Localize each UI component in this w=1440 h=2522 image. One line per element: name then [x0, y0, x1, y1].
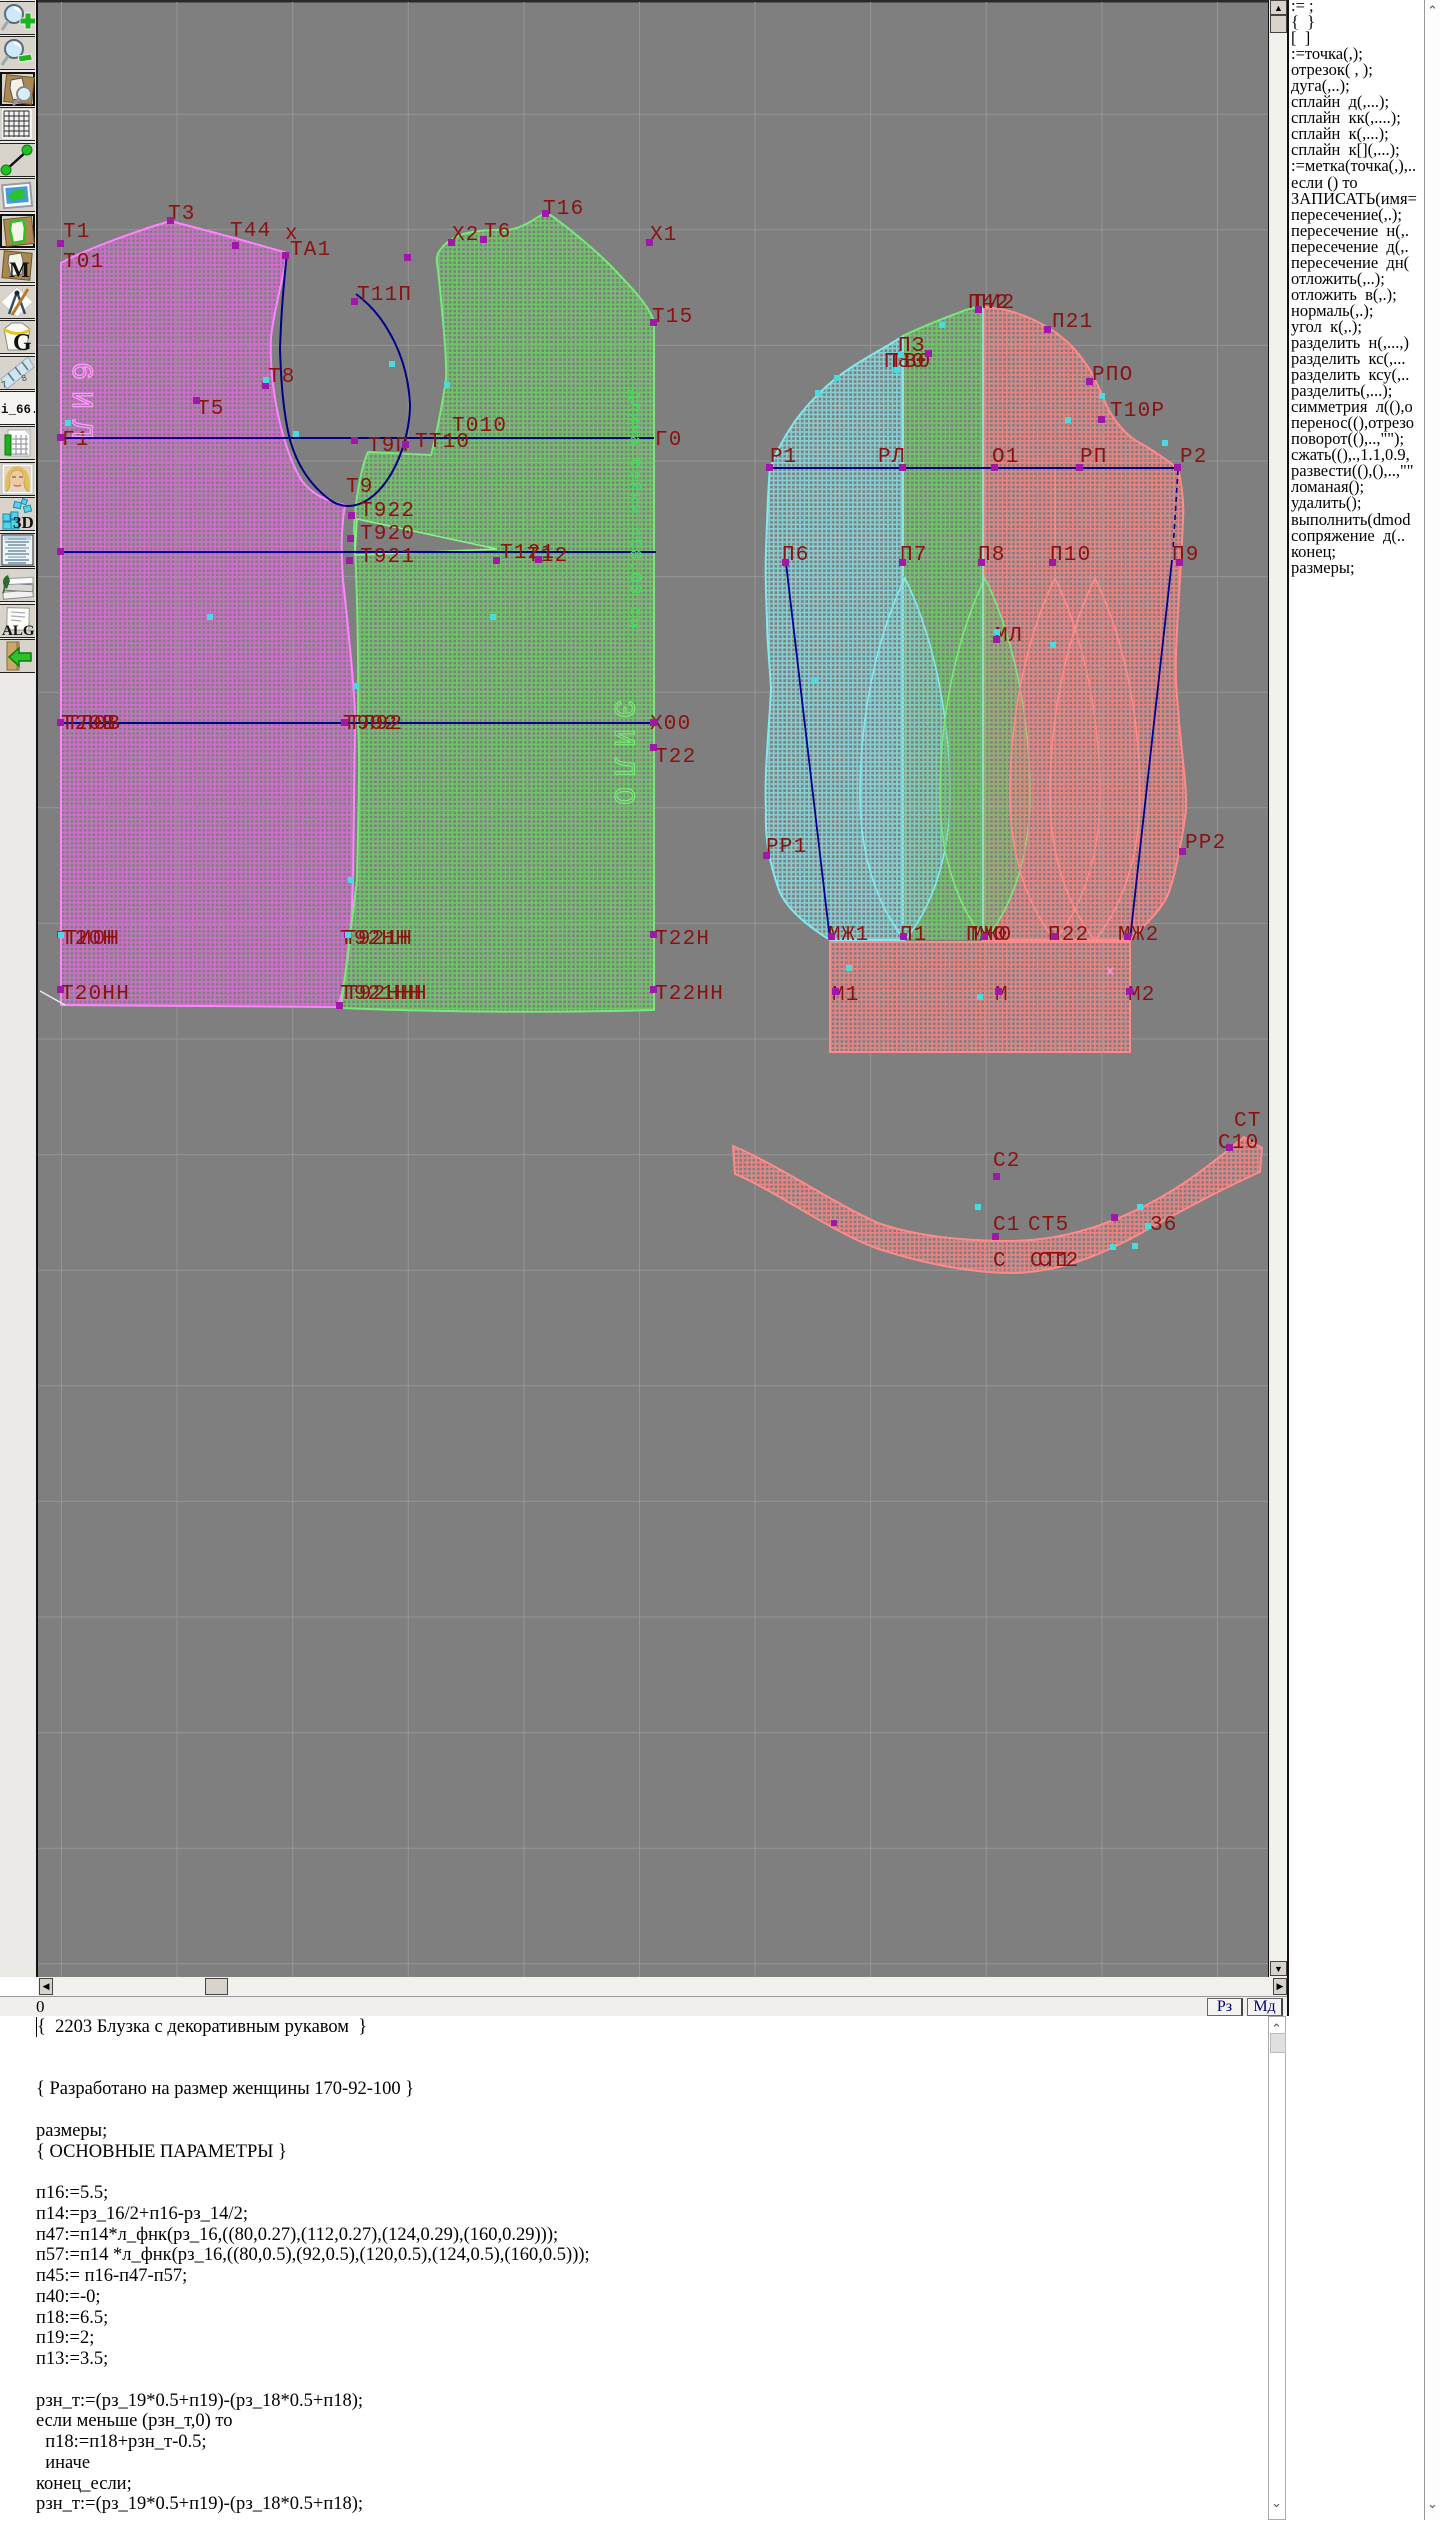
svg-text:С10: С10: [1218, 1132, 1259, 1155]
svg-text:6ИЛ: 6ИЛ: [63, 362, 97, 449]
svg-text:Т16: Т16: [543, 198, 584, 221]
svg-text:Т5: Т5: [197, 398, 225, 421]
svg-text:М2: М2: [1128, 984, 1156, 1007]
svg-text:G: G: [13, 330, 32, 353]
svg-text:МЖ0: МЖ0: [971, 924, 1012, 947]
svg-text:Т1: Т1: [63, 221, 91, 244]
svg-text:36: 36: [1150, 1214, 1178, 1237]
svg-text:Т921Н: Т921Н: [344, 928, 413, 951]
svg-text:Г0: Г0: [655, 429, 683, 452]
svg-text:ТТ10: ТТ10: [415, 431, 470, 454]
svg-text:Х1: Х1: [650, 224, 678, 247]
svg-text:РР1: РР1: [766, 836, 807, 859]
svg-text:Р2: Р2: [1180, 446, 1208, 469]
svg-text:РПО: РПО: [1092, 364, 1133, 387]
svg-text:длина бейки 458.00 см: длина бейки 458.00 см: [625, 390, 644, 629]
svg-text:М1: М1: [832, 984, 860, 1007]
svg-text:Т8: Т8: [268, 366, 296, 389]
svg-text:Т11П: Т11П: [357, 284, 412, 307]
svg-text:Т922: Т922: [360, 500, 415, 523]
svg-text:СТ: СТ: [1234, 1110, 1262, 1133]
svg-text:СТ5: СТ5: [1028, 1214, 1069, 1237]
svg-text:Т6: Т6: [484, 221, 512, 244]
svg-text:Т920: Т920: [360, 523, 415, 546]
svg-text:M: M: [9, 257, 30, 282]
svg-text:ТА1: ТА1: [290, 239, 331, 262]
svg-text:Т9: Т9: [346, 476, 374, 499]
svg-text:Т10Р: Т10Р: [1110, 400, 1165, 423]
svg-text:РП: РП: [1080, 446, 1108, 469]
svg-text:П10: П10: [1050, 544, 1091, 567]
svg-text:Т20НН: Т20НН: [61, 983, 130, 1006]
svg-text:Т01: Т01: [63, 251, 104, 274]
svg-text:Т22Н: Т22Н: [655, 928, 710, 951]
svg-text:Х2: Х2: [452, 224, 480, 247]
svg-text:СТ2: СТ2: [1038, 1250, 1079, 1273]
svg-text:Т15: Т15: [652, 306, 693, 329]
svg-text:Т12: Т12: [527, 545, 568, 568]
svg-text:ТЛ0В: ТЛ0В: [66, 713, 121, 736]
svg-text:i_66.: i_66.: [1, 403, 35, 417]
svg-text:ALG: ALG: [2, 623, 35, 637]
svg-text:Т44: Т44: [230, 220, 271, 243]
svg-text:8: 8: [20, 372, 28, 383]
svg-text:х: х: [1106, 964, 1114, 980]
svg-text:Р1: Р1: [770, 446, 798, 469]
svg-text:М: М: [995, 984, 1009, 1007]
svg-text:С2: С2: [993, 1150, 1021, 1173]
svg-text:ЭИЛО: ЭИЛО: [605, 700, 639, 816]
svg-text:Т22: Т22: [655, 746, 696, 769]
svg-text:ТИ0Н: ТИ0Н: [65, 928, 120, 951]
svg-text:РР2: РР2: [1185, 832, 1226, 855]
svg-text:ТЛ92: ТЛ92: [348, 713, 403, 736]
svg-text:Т92ННН: Т92ННН: [345, 983, 428, 1006]
svg-text:С: С: [993, 1250, 1007, 1273]
svg-text:3D: 3D: [13, 513, 34, 530]
svg-text:Т22НН: Т22НН: [655, 983, 724, 1006]
svg-text:Т921: Т921: [360, 546, 415, 569]
svg-text:П21: П21: [1052, 311, 1093, 334]
